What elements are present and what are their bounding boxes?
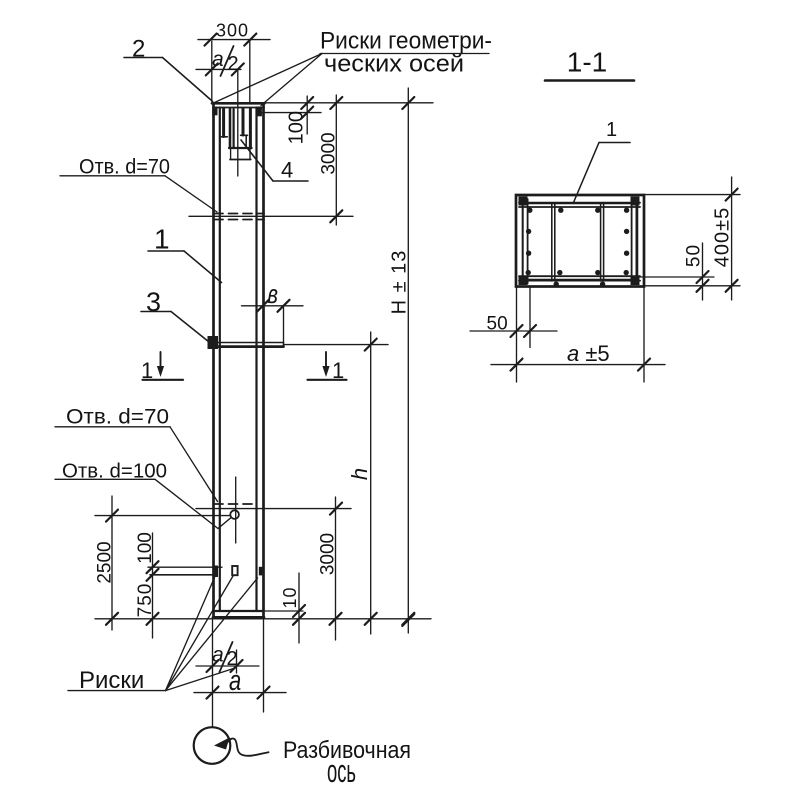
svg-text:1: 1 bbox=[154, 224, 170, 255]
svg-text:a: a bbox=[212, 48, 224, 71]
svg-text:3000: 3000 bbox=[319, 132, 340, 174]
svg-text:3: 3 bbox=[146, 287, 161, 317]
svg-text:h: h bbox=[347, 468, 372, 480]
svg-text:H ± 13: H ± 13 bbox=[389, 250, 411, 315]
svg-text:2500: 2500 bbox=[95, 541, 116, 583]
svg-text:Отв. d=70: Отв. d=70 bbox=[79, 156, 170, 179]
svg-text:100: 100 bbox=[286, 111, 308, 144]
svg-text:4: 4 bbox=[281, 158, 293, 183]
svg-text:300: 300 bbox=[216, 21, 249, 41]
svg-text:3000: 3000 bbox=[318, 533, 339, 575]
svg-text:10: 10 bbox=[280, 586, 300, 608]
svg-text:1: 1 bbox=[606, 119, 617, 141]
svg-text:ческих осей: ческих осей bbox=[324, 51, 464, 78]
svg-text:2: 2 bbox=[132, 36, 145, 63]
svg-text:50: 50 bbox=[684, 244, 705, 267]
svg-text:a: a bbox=[212, 644, 224, 667]
svg-text:100: 100 bbox=[135, 532, 156, 564]
svg-text:2: 2 bbox=[228, 53, 239, 75]
svg-text:a ±5: a ±5 bbox=[567, 341, 610, 366]
svg-text:400±5: 400±5 bbox=[712, 207, 734, 267]
svg-text:50: 50 bbox=[487, 314, 508, 335]
svg-text:Отв. d=70: Отв. d=70 bbox=[66, 406, 169, 429]
svg-text:в: в bbox=[268, 279, 278, 308]
svg-text:ось: ось bbox=[327, 754, 356, 790]
svg-text:750: 750 bbox=[135, 583, 156, 618]
svg-text:1-1: 1-1 bbox=[567, 47, 607, 78]
